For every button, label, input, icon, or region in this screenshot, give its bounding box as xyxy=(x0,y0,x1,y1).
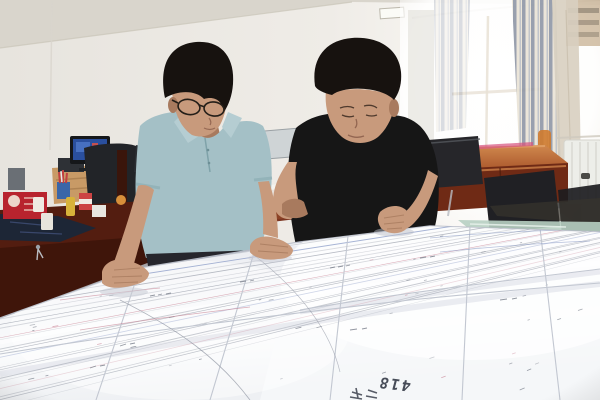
photo-illustration: 418 xyxy=(0,0,600,400)
vignette xyxy=(0,0,600,400)
office-blueprint-photo: 418 xyxy=(0,0,600,400)
